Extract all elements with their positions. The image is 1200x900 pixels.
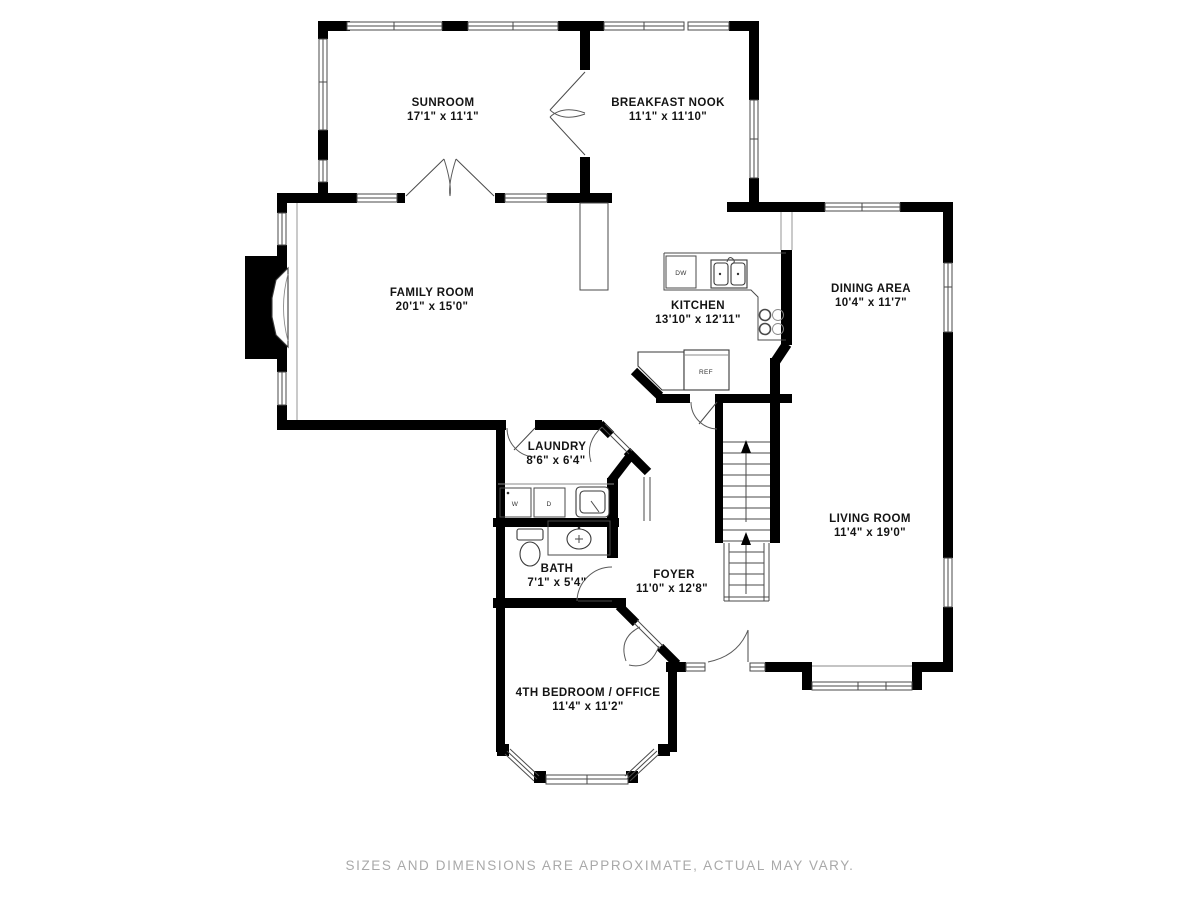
room-label-family-room: FAMILY ROOM 20'1" x 15'0" <box>390 287 474 313</box>
svg-text:17'1" x 11'1": 17'1" x 11'1" <box>407 111 479 123</box>
staircase <box>723 440 770 601</box>
room-label-sunroom: SUNROOM 17'1" x 11'1" <box>407 97 479 123</box>
washer-label: W <box>512 501 519 508</box>
laundry-tub <box>576 487 609 517</box>
counter-peninsula <box>580 203 608 290</box>
svg-text:LIVING ROOM: LIVING ROOM <box>829 513 911 525</box>
dryer-label: D <box>547 501 552 508</box>
svg-text:BREAKFAST NOOK: BREAKFAST NOOK <box>611 97 725 109</box>
kitchen-fixtures: DW REF <box>580 203 786 390</box>
room-label-bedroom-office: 4TH BEDROOM / OFFICE 11'4" x 11'2" <box>516 687 661 713</box>
room-labels: SUNROOM 17'1" x 11'1" BREAKFAST NOOK 11'… <box>390 97 911 713</box>
kitchen-sink <box>711 258 747 288</box>
room-label-kitchen: KITCHEN 13'10" x 12'11" <box>655 300 741 326</box>
laundry-fixtures: W D <box>498 484 614 517</box>
svg-text:10'4" x 11'7": 10'4" x 11'7" <box>835 297 907 309</box>
room-label-dining-area: DINING AREA 10'4" x 11'7" <box>831 283 911 309</box>
svg-text:DINING AREA: DINING AREA <box>831 283 911 295</box>
windows <box>278 22 952 784</box>
cooktop <box>760 310 784 335</box>
disclaimer-text: SIZES AND DIMENSIONS ARE APPROXIMATE, AC… <box>0 858 1200 873</box>
svg-text:BATH: BATH <box>541 563 574 575</box>
svg-text:8'6" x 6'4": 8'6" x 6'4" <box>526 455 585 467</box>
refrigerator-label: REF <box>699 369 713 376</box>
svg-text:11'4" x 19'0": 11'4" x 19'0" <box>834 527 906 539</box>
svg-text:FOYER: FOYER <box>653 569 695 581</box>
floor-plan-page: DW REF W D <box>0 0 1200 900</box>
svg-text:11'0" x 12'8": 11'0" x 12'8" <box>636 583 708 595</box>
toilet <box>517 529 543 566</box>
svg-text:13'10" x 12'11": 13'10" x 12'11" <box>655 314 741 326</box>
svg-text:7'1" x 5'4": 7'1" x 5'4" <box>527 577 586 589</box>
floor-plan-drawing: DW REF W D <box>0 0 1200 900</box>
bath-fixtures <box>517 521 610 566</box>
svg-text:FAMILY ROOM: FAMILY ROOM <box>390 287 474 299</box>
room-label-breakfast-nook: BREAKFAST NOOK 11'1" x 11'10" <box>611 97 725 123</box>
fireplace <box>245 256 288 359</box>
room-label-bath: BATH 7'1" x 5'4" <box>527 563 586 589</box>
svg-text:20'1" x 15'0": 20'1" x 15'0" <box>396 301 469 313</box>
svg-text:11'1" x 11'10": 11'1" x 11'10" <box>629 111 707 123</box>
svg-text:11'4" x 11'2": 11'4" x 11'2" <box>552 701 623 713</box>
room-label-living-room: LIVING ROOM 11'4" x 19'0" <box>829 513 911 539</box>
svg-text:LAUNDRY: LAUNDRY <box>528 441 587 453</box>
walls <box>277 21 953 783</box>
room-label-laundry: LAUNDRY 8'6" x 6'4" <box>526 441 586 467</box>
svg-text:KITCHEN: KITCHEN <box>671 300 725 312</box>
dishwasher-label: DW <box>675 270 687 277</box>
room-label-foyer: FOYER 11'0" x 12'8" <box>636 569 708 595</box>
svg-text:SUNROOM: SUNROOM <box>412 97 475 109</box>
svg-text:4TH BEDROOM / OFFICE: 4TH BEDROOM / OFFICE <box>516 687 661 699</box>
